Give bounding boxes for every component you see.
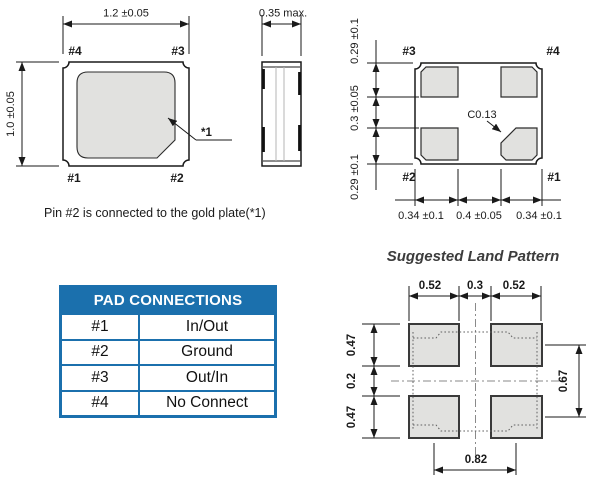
land-pattern-title: Suggested Land Pattern: [387, 248, 560, 265]
top-view: 1.2 ±0.05 1.0 ±0.05 *1 #4 #3 #1 #2: [5, 8, 232, 186]
lp-left-dim-1: 0.47: [346, 334, 358, 356]
bottom-height-dim-2: 0.3 ±0.05: [349, 85, 361, 131]
pad-3: [421, 67, 458, 97]
pad-number: #4: [62, 392, 140, 416]
land-pad-bottom-left: [409, 396, 459, 438]
pad-number: #1: [62, 315, 140, 339]
lp-top-dim-3: 0.52: [503, 280, 525, 292]
pad-connections-table: PAD CONNECTIONS #1 In/Out #2 Ground #3 O…: [59, 285, 277, 418]
land-pad-top-right: [491, 324, 542, 366]
top-view-height-dim: 1.0 ±0.05: [5, 91, 17, 137]
bottom-view: #3 #4 #2 #1 C0.13 0.34 ±0.1 0.4 ±0.05 0.…: [349, 18, 562, 222]
gold-plate-ref-label: *1: [201, 127, 212, 139]
pad-number: #2: [62, 341, 140, 365]
table-row: #1 In/Out: [62, 313, 274, 339]
pad-number: #3: [62, 366, 140, 390]
pad-connections-header: PAD CONNECTIONS: [62, 288, 274, 313]
pad-4: [501, 67, 537, 97]
side-body: [262, 62, 301, 166]
gold-plate: [77, 72, 175, 158]
bottom-width-dim-1: 0.34 ±0.1: [398, 210, 444, 222]
pin-label-2: #2: [170, 171, 184, 185]
bottom-width-dim-3: 0.34 ±0.1: [516, 210, 562, 222]
lp-left-dim-3: 0.47: [346, 406, 358, 428]
bottom-width-dim-2: 0.4 ±0.05: [456, 210, 502, 222]
table-row: #4 No Connect: [62, 390, 274, 416]
lp-right-dim: 0.67: [558, 370, 570, 392]
lp-bottom-dim: 0.82: [465, 454, 487, 466]
land-pattern: Suggested Land Pattern 0.52 0.3 0.52 0.4…: [346, 248, 586, 475]
table-row: #2 Ground: [62, 339, 274, 365]
pad-function: Ground: [140, 341, 274, 365]
pin-label-1: #1: [547, 170, 561, 184]
pad-function: No Connect: [140, 392, 274, 416]
bottom-height-dim-3: 0.29 ±0.1: [349, 154, 361, 200]
bottom-height-dim-1: 0.29 ±0.1: [349, 18, 361, 64]
table-row: #3 Out/In: [62, 364, 274, 390]
pin-label-2: #2: [402, 170, 416, 184]
lp-top-dim-2: 0.3: [467, 280, 483, 292]
component-datasheet-drawing: 1.2 ±0.05 1.0 ±0.05 *1 #4 #3 #1 #2 0.35 …: [0, 0, 600, 480]
pin-label-4: #4: [68, 44, 82, 58]
pin-label-4: #4: [546, 44, 560, 58]
pin-label-1: #1: [67, 171, 81, 185]
pad-function: In/Out: [140, 315, 274, 339]
pad-function: Out/In: [140, 366, 274, 390]
side-view-thickness-dim: 0.35 max.: [259, 8, 307, 20]
side-view: 0.35 max.: [259, 8, 307, 167]
land-pad-bottom-right: [491, 396, 542, 438]
lp-left-dim-2: 0.2: [346, 373, 358, 389]
top-view-width-dim: 1.2 ±0.05: [103, 8, 149, 20]
pad-2: [421, 128, 458, 160]
pin-label-3: #3: [402, 44, 416, 58]
chamfer-label: C0.13: [467, 109, 496, 121]
lp-top-dim-1: 0.52: [419, 280, 441, 292]
gold-plate-note: Pin #2 is connected to the gold plate(*1…: [44, 206, 266, 220]
land-pad-top-left: [409, 324, 459, 366]
pin-label-3: #3: [171, 44, 185, 58]
